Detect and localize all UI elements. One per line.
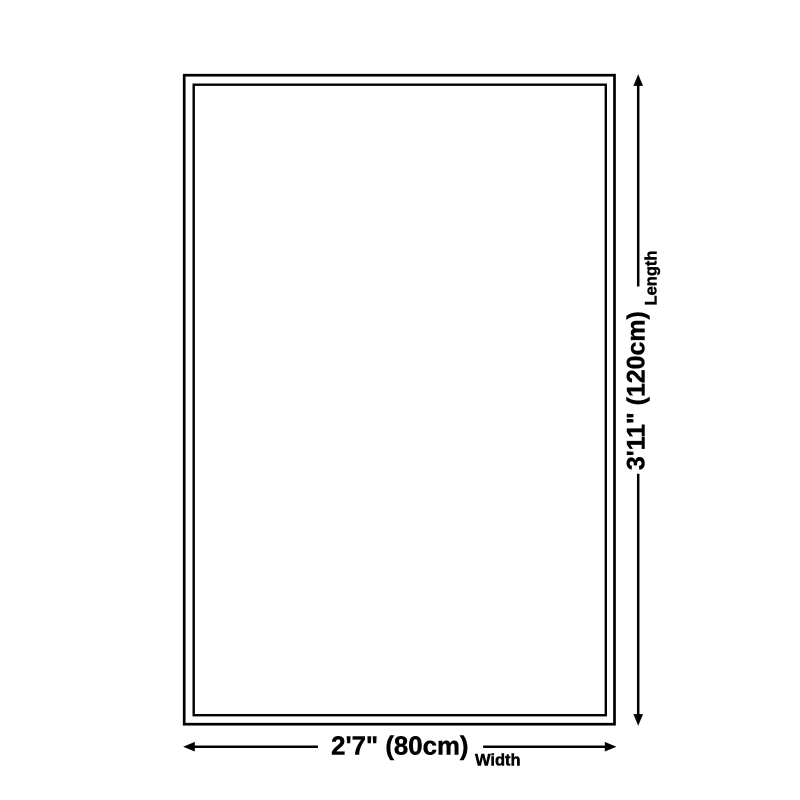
svg-text:3'11" (120cm): 3'11" (120cm) <box>623 311 651 470</box>
svg-text:Length: Length <box>642 251 660 306</box>
svg-text:Width: Width <box>475 751 521 769</box>
svg-text:2'7" (80cm): 2'7" (80cm) <box>331 733 468 761</box>
